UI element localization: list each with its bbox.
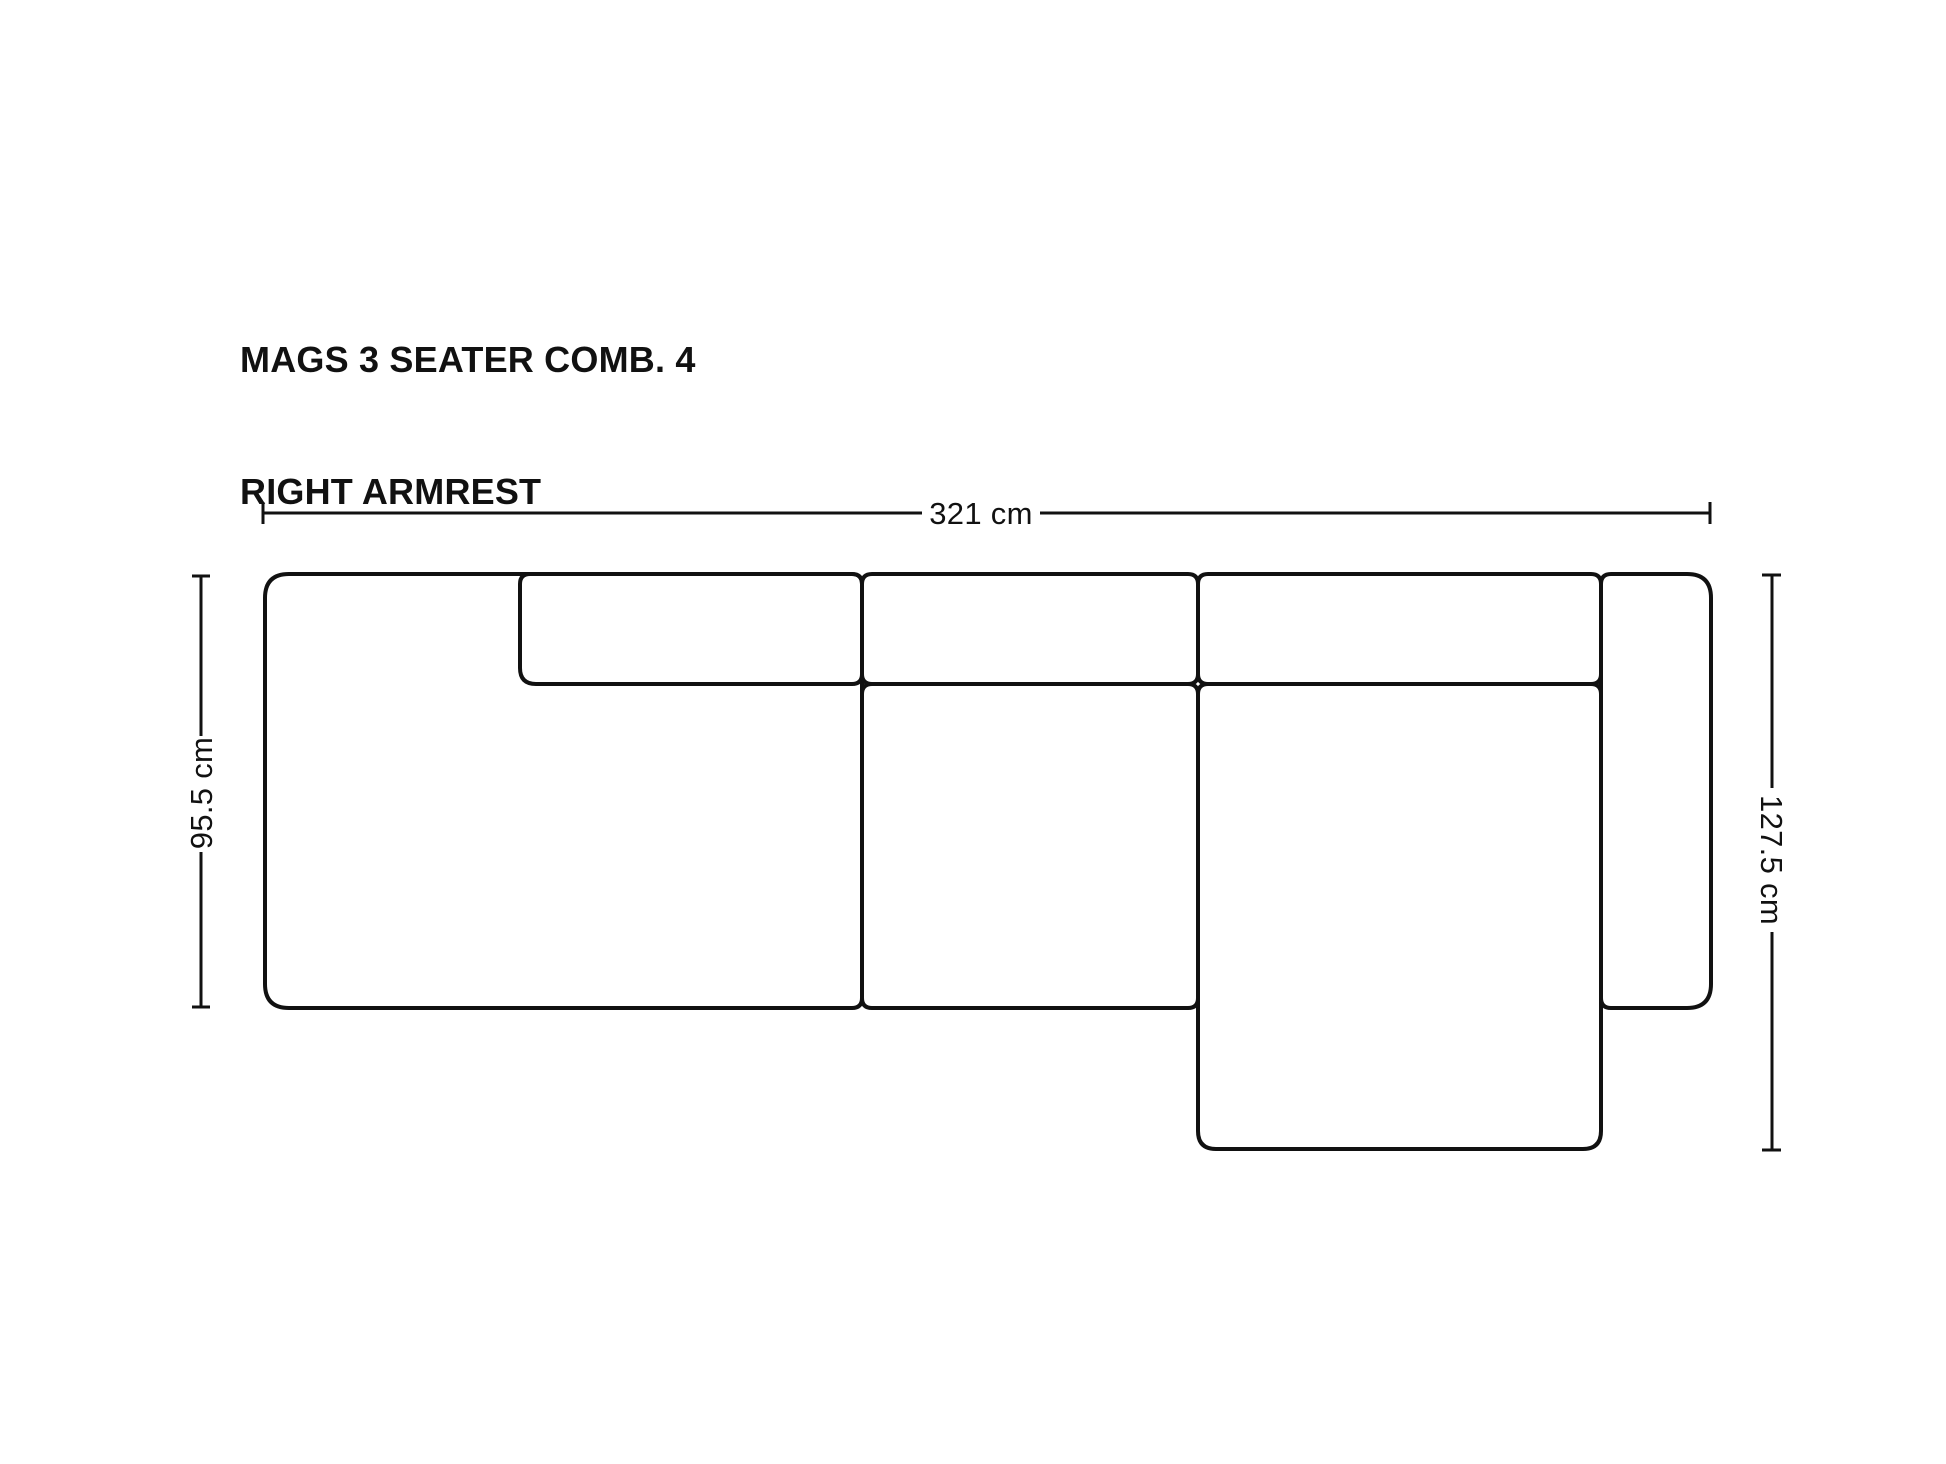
back-cushion-middle [862, 574, 1198, 684]
width-dimension-label: 321 cm [929, 496, 1032, 531]
armrest-right-outline [1601, 574, 1711, 1008]
sofa-outlines [265, 574, 1711, 1149]
chaise-outline [1198, 684, 1601, 1149]
sofa-top-view-diagram: 321 cm 95.5 cm 127.5 cm [0, 0, 1946, 1464]
right-depth-dimension-label: 127.5 cm [1754, 795, 1789, 925]
seat-middle-outline [862, 684, 1198, 1008]
dimension-lines [192, 502, 1781, 1150]
module-lounge-left-outline [265, 574, 862, 1008]
back-cushion-chaise [1198, 574, 1601, 684]
product-dimension-diagram-page: MAGS 3 SEATER COMB. 4 RIGHT ARMREST [0, 0, 1946, 1464]
left-depth-dimension-label: 95.5 cm [184, 737, 219, 849]
back-cushion-left [520, 574, 862, 684]
